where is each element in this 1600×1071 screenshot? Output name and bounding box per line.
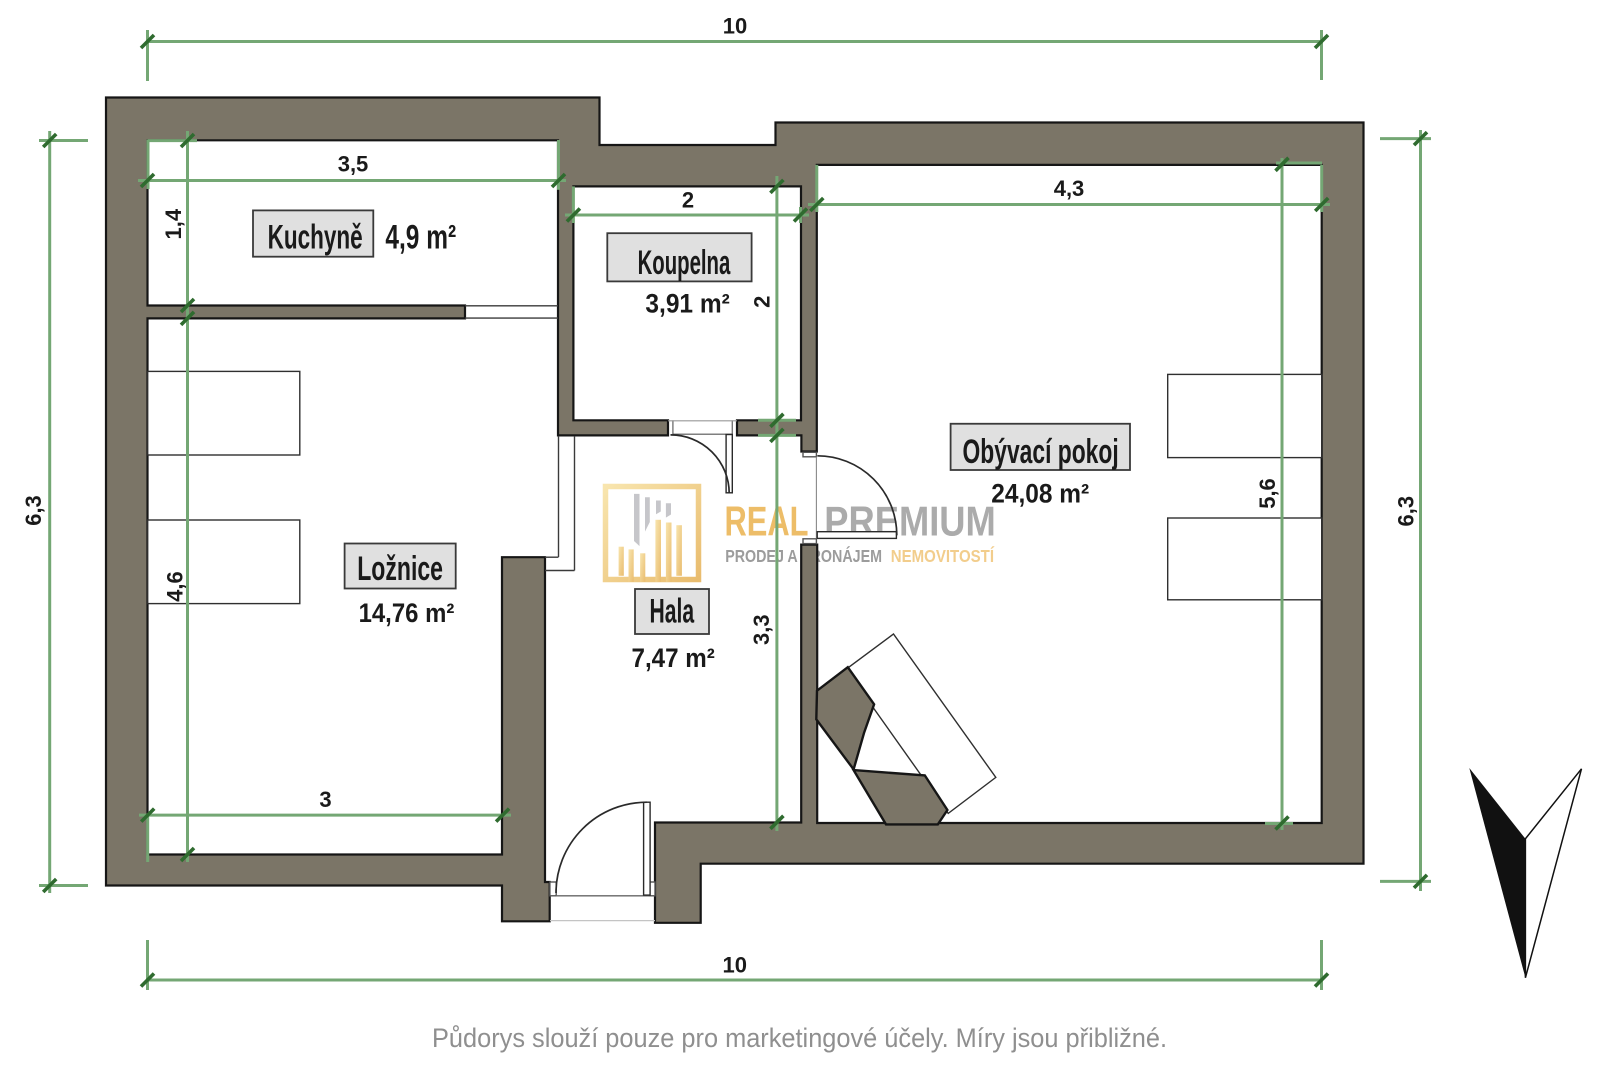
svg-text:NEMOVITOSTÍ: NEMOVITOSTÍ xyxy=(891,545,995,566)
svg-text:6,3: 6,3 xyxy=(1394,496,1419,527)
svg-text:3,91 m²: 3,91 m² xyxy=(645,288,729,318)
svg-text:Obývací pokoj: Obývací pokoj xyxy=(963,433,1119,471)
svg-text:Kuchyně: Kuchyně xyxy=(268,219,363,257)
svg-text:1,4: 1,4 xyxy=(161,208,186,239)
svg-text:2: 2 xyxy=(749,296,774,308)
svg-text:4,9 m²: 4,9 m² xyxy=(385,219,456,257)
svg-text:REAL: REAL xyxy=(725,498,809,545)
svg-text:6,3: 6,3 xyxy=(21,495,46,526)
svg-text:7,47 m²: 7,47 m² xyxy=(632,643,715,673)
svg-text:3,5: 3,5 xyxy=(338,152,369,177)
svg-text:2: 2 xyxy=(682,187,694,212)
svg-text:Ložnice: Ložnice xyxy=(357,550,443,588)
svg-text:Půdorys slouží pouze pro marke: Půdorys slouží pouze pro marketingové úč… xyxy=(432,1023,1167,1053)
svg-text:3,3: 3,3 xyxy=(749,614,774,645)
svg-text:10: 10 xyxy=(723,952,747,977)
svg-text:24,08 m²: 24,08 m² xyxy=(991,479,1089,509)
svg-text:4,3: 4,3 xyxy=(1054,176,1085,201)
svg-text:10: 10 xyxy=(723,14,747,39)
svg-text:Hala: Hala xyxy=(650,592,695,630)
svg-text:Koupelna: Koupelna xyxy=(638,244,731,282)
svg-text:5,6: 5,6 xyxy=(1255,478,1280,509)
svg-text:14,76 m²: 14,76 m² xyxy=(359,598,455,628)
svg-text:3: 3 xyxy=(319,787,331,812)
svg-text:4,6: 4,6 xyxy=(163,571,188,602)
